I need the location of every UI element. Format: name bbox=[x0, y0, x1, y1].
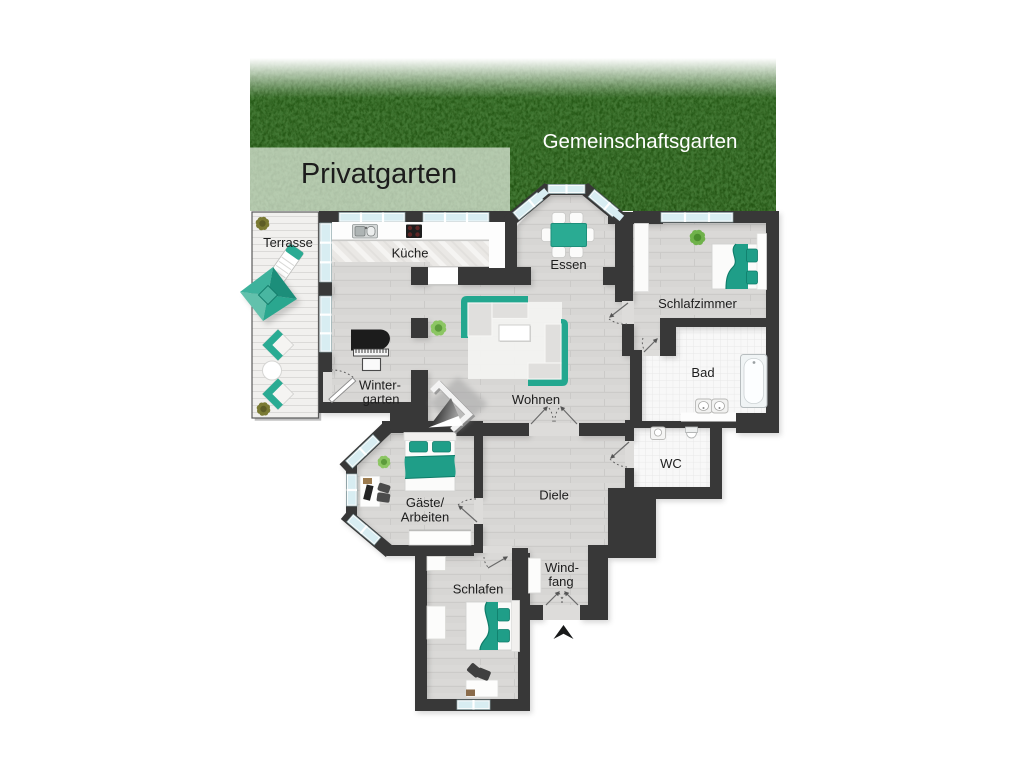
svg-text:Privatgarten: Privatgarten bbox=[301, 158, 457, 190]
svg-text:Diele: Diele bbox=[539, 488, 569, 503]
svg-text:Wind-: Wind- bbox=[545, 560, 579, 575]
svg-text:Gemeinschaftsgarten: Gemeinschaftsgarten bbox=[543, 130, 738, 153]
svg-text:garten: garten bbox=[363, 392, 400, 407]
svg-text:Terrasse: Terrasse bbox=[263, 235, 313, 250]
svg-text:fang: fang bbox=[548, 574, 573, 589]
svg-text:Essen: Essen bbox=[550, 257, 586, 272]
svg-text:Schlafzimmer: Schlafzimmer bbox=[658, 296, 737, 311]
svg-text:Schlafen: Schlafen bbox=[453, 582, 504, 597]
svg-text:Winter-: Winter- bbox=[359, 378, 401, 393]
svg-text:WC: WC bbox=[660, 456, 682, 471]
svg-text:Arbeiten: Arbeiten bbox=[401, 510, 449, 525]
svg-text:Wohnen: Wohnen bbox=[512, 392, 560, 407]
svg-text:Bad: Bad bbox=[691, 365, 714, 380]
svg-text:Küche: Küche bbox=[392, 246, 429, 261]
svg-text:Gäste/: Gäste/ bbox=[406, 495, 445, 510]
